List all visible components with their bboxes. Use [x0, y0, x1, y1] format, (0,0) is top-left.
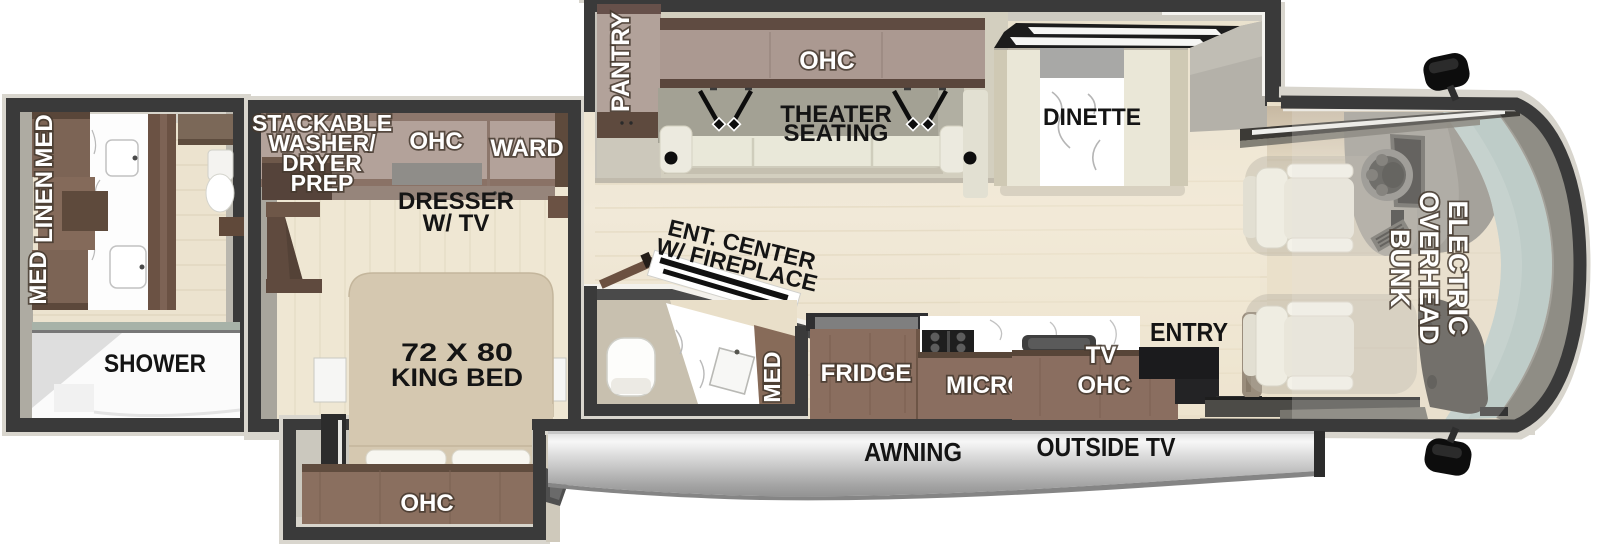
svg-text:MED: MED	[25, 251, 52, 304]
svg-text:MED: MED	[31, 114, 58, 167]
svg-text:OHC: OHC	[799, 47, 855, 75]
svg-text:FRIDGE: FRIDGE	[821, 360, 912, 387]
svg-text:LINEN: LINEN	[31, 171, 58, 243]
svg-text:OHC: OHC	[1077, 372, 1130, 399]
svg-text:W/ TV: W/ TV	[423, 210, 490, 237]
svg-text:PREP: PREP	[291, 170, 354, 196]
svg-text:OHC: OHC	[400, 490, 453, 517]
svg-text:SEATING: SEATING	[784, 120, 889, 147]
svg-text:OVERHEAD: OVERHEAD	[1414, 191, 1444, 344]
svg-text:DINETTE: DINETTE	[1043, 104, 1141, 131]
svg-text:72 X 80: 72 X 80	[401, 339, 513, 367]
svg-text:OHC: OHC	[409, 128, 462, 155]
svg-text:PANTRY: PANTRY	[607, 12, 635, 112]
svg-text:ENTRY: ENTRY	[1150, 317, 1228, 347]
svg-text:ELECTRIC: ELECTRIC	[1443, 201, 1473, 336]
svg-text:OUTSIDE TV: OUTSIDE TV	[1037, 432, 1177, 462]
svg-text:AWNING: AWNING	[864, 437, 962, 467]
svg-text:SHOWER: SHOWER	[104, 350, 206, 378]
svg-text:TV: TV	[1086, 342, 1117, 369]
svg-text:MED: MED	[759, 351, 785, 402]
svg-text:BUNK: BUNK	[1385, 229, 1415, 307]
svg-text:KING BED: KING BED	[391, 364, 523, 392]
svg-text:WARD: WARD	[490, 135, 563, 162]
